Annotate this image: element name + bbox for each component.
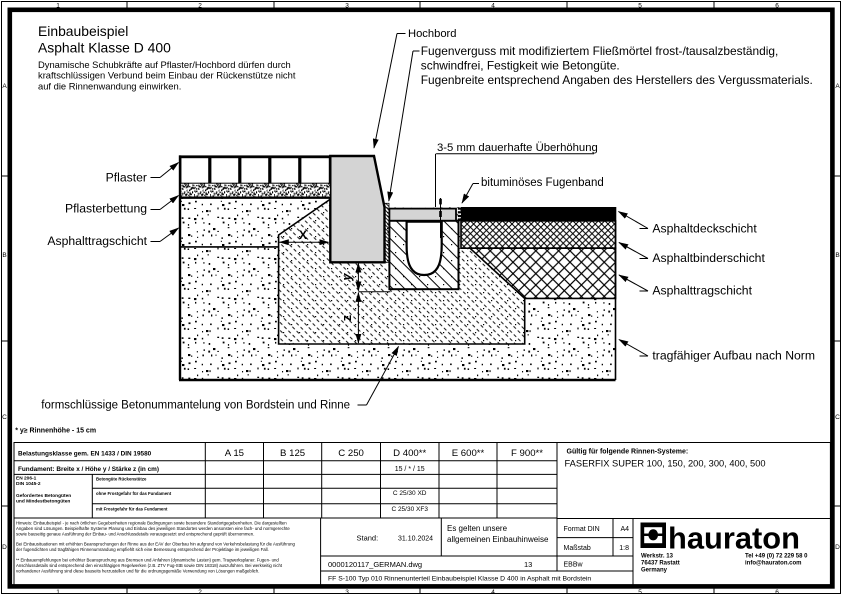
svg-text:X: X bbox=[299, 228, 307, 242]
svg-text:vorhandener Ausführung sind di: vorhandener Ausführung sind diese bausei… bbox=[16, 569, 259, 574]
svg-text:Werkstr. 13: Werkstr. 13 bbox=[641, 554, 674, 560]
svg-text:A: A bbox=[835, 83, 840, 90]
svg-text:5: 5 bbox=[638, 2, 642, 9]
svg-text:kraftschlüssigen Verbund beim: kraftschlüssigen Verbund beim Einbau der… bbox=[38, 70, 296, 81]
svg-text:C: C bbox=[2, 414, 7, 421]
svg-text:Belastungsklasse gem. EN 1433: Belastungsklasse gem. EN 1433 / DIN 1958… bbox=[18, 451, 152, 458]
svg-text:6: 6 bbox=[775, 589, 779, 595]
svg-text:* y≥ Rinnenhöhe - 15 cm: * y≥ Rinnenhöhe - 15 cm bbox=[15, 428, 96, 435]
svg-text:Gültig für folgende Rinnen-Sys: Gültig für folgende Rinnen-Systeme: bbox=[567, 449, 689, 456]
svg-text:Asphaltbinderschicht: Asphaltbinderschicht bbox=[652, 251, 765, 265]
svg-text:D: D bbox=[835, 544, 840, 551]
svg-text:Es gelten unsere: Es gelten unsere bbox=[447, 524, 508, 533]
svg-text:B: B bbox=[835, 252, 839, 259]
svg-text:5: 5 bbox=[638, 589, 642, 595]
svg-text:Asphaltdeckschicht: Asphaltdeckschicht bbox=[652, 222, 757, 236]
svg-text:EN 206-1: EN 206-1 bbox=[16, 476, 37, 482]
svg-text:1:8: 1:8 bbox=[619, 545, 629, 552]
svg-text:Tel +49 (0) 72 229 58 0: Tel +49 (0) 72 229 58 0 bbox=[745, 554, 808, 560]
svg-text:A4: A4 bbox=[620, 526, 629, 533]
svg-text:B 125: B 125 bbox=[280, 448, 305, 459]
svg-text:Fundament: Breite x / Höhe y /: Fundament: Breite x / Höhe y / Stärke z … bbox=[18, 466, 159, 473]
svg-text:hauraton: hauraton bbox=[668, 521, 800, 556]
svg-text:E 600**: E 600** bbox=[452, 448, 485, 459]
svg-text:1: 1 bbox=[56, 589, 60, 595]
svg-text:Hochbord: Hochbord bbox=[408, 28, 457, 40]
svg-text:Asphalttragschicht: Asphalttragschicht bbox=[652, 283, 752, 297]
svg-text:Fugenverguss mit modifiziertem: Fugenverguss mit modifiziertem Fließmört… bbox=[421, 44, 779, 58]
svg-text:formschlüssige Betonummantelun: formschlüssige Betonummantelung von Bord… bbox=[41, 400, 350, 412]
svg-text:D: D bbox=[2, 544, 7, 551]
svg-text:C: C bbox=[835, 414, 840, 421]
svg-text:A: A bbox=[2, 83, 7, 90]
svg-text:EBBw: EBBw bbox=[564, 562, 584, 569]
svg-text:15 / * / 15: 15 / * / 15 bbox=[395, 466, 425, 473]
svg-text:13: 13 bbox=[524, 560, 532, 569]
svg-text:Pflaster: Pflaster bbox=[106, 170, 147, 184]
svg-text:der fugendichten und tragfähig: der fugendichten und tragfähigen Rinnenu… bbox=[16, 547, 269, 552]
svg-text:Germany: Germany bbox=[641, 568, 668, 574]
svg-text:C 250: C 250 bbox=[338, 448, 364, 459]
svg-text:sowie bauseitig genaue Ausführ: sowie bauseitig genaue Ausführung der Ei… bbox=[16, 531, 254, 536]
svg-text:Anschlussdetails sind entsprec: Anschlussdetails sind entsprechend den e… bbox=[16, 563, 283, 568]
svg-text:0000120117_GERMAN.dwg: 0000120117_GERMAN.dwg bbox=[328, 560, 422, 569]
svg-text:Gefordertes Betongüten: Gefordertes Betongüten bbox=[16, 493, 71, 499]
svg-text:Format DIN: Format DIN bbox=[564, 526, 600, 533]
svg-text:Asphalt Klasse D 400: Asphalt Klasse D 400 bbox=[38, 40, 171, 56]
svg-text:2: 2 bbox=[198, 589, 202, 595]
svg-text:3: 3 bbox=[345, 589, 349, 595]
svg-text:Stand:: Stand: bbox=[357, 534, 379, 543]
svg-text:Fugenbreite entsprechend Angab: Fugenbreite entsprechend Angaben des Her… bbox=[421, 73, 813, 87]
svg-text:mit Frostgefahr für das Fundam: mit Frostgefahr für das Fundament bbox=[96, 507, 168, 512]
svg-text:allgemeinen Einbauhinweise: allgemeinen Einbauhinweise bbox=[447, 535, 549, 544]
svg-text:C 25/30 XF3: C 25/30 XF3 bbox=[391, 506, 428, 513]
svg-text:und Mindestbetongüten: und Mindestbetongüten bbox=[16, 499, 70, 505]
svg-text:4: 4 bbox=[491, 2, 495, 9]
svg-text:info@hauraton.com: info@hauraton.com bbox=[745, 561, 802, 567]
svg-text:FASERFIX SUPER 100, 150, 200,: FASERFIX SUPER 100, 150, 200, 300, 400, … bbox=[565, 459, 766, 469]
svg-text:Bei Einbausituationen mit erhö: Bei Einbausituationen mit erhöhten Beans… bbox=[16, 542, 296, 547]
svg-text:y: y bbox=[339, 273, 354, 282]
svg-text:F 900**: F 900** bbox=[511, 448, 543, 459]
svg-text:ohne Frostgefahr für das Funda: ohne Frostgefahr für das Fundament bbox=[96, 491, 172, 496]
svg-text:z: z bbox=[339, 314, 354, 321]
svg-text:schwindfrei, Festigkeit wie Be: schwindfrei, Festigkeit wie Betongüte. bbox=[421, 58, 620, 72]
svg-text:Betongüte Rückenstütze: Betongüte Rückenstütze bbox=[96, 476, 147, 481]
svg-text:tragfähiger Aufbau nach Norm: tragfähiger Aufbau nach Norm bbox=[652, 349, 815, 363]
svg-text:Asphalttragschicht: Asphalttragschicht bbox=[47, 234, 147, 248]
svg-text:Einbaubeispiel: Einbaubeispiel bbox=[38, 23, 128, 39]
svg-text:A 15: A 15 bbox=[225, 448, 244, 459]
svg-text:Hinweis: Einbaubeispiel - je n: Hinweis: Einbaubeispiel - je nach örtlic… bbox=[16, 521, 287, 526]
svg-text:D 400**: D 400** bbox=[393, 448, 426, 459]
svg-text:Pflasterbettung: Pflasterbettung bbox=[65, 202, 147, 216]
svg-text:1: 1 bbox=[56, 2, 60, 9]
svg-text:bituminöses Fugenband: bituminöses Fugenband bbox=[481, 177, 604, 189]
svg-text:2: 2 bbox=[198, 2, 202, 9]
svg-text:31.10.2024: 31.10.2024 bbox=[398, 536, 433, 543]
svg-text:Dynamische Schubkräfte auf Pfl: Dynamische Schubkräfte auf Pflaster/Hoch… bbox=[38, 59, 291, 70]
svg-text:Maßstab: Maßstab bbox=[564, 545, 591, 552]
svg-text:FF S-100 Typ 010 Rinnenunterte: FF S-100 Typ 010 Rinnenunterteil Einbaub… bbox=[328, 576, 591, 583]
svg-text:76437 Rastatt: 76437 Rastatt bbox=[641, 561, 680, 567]
svg-text:Angaben sind Lösungen. Beispie: Angaben sind Lösungen. Beispielhafte Sys… bbox=[16, 526, 290, 531]
svg-text:C 25/30 XD: C 25/30 XD bbox=[393, 490, 427, 497]
svg-text:** Einbauempfehlungen bei erhö: ** Einbauempfehlungen bei erhöhter Beans… bbox=[16, 558, 279, 563]
svg-text:3: 3 bbox=[345, 2, 349, 9]
svg-text:6: 6 bbox=[775, 2, 779, 9]
svg-text:3-5 mm dauerhafte Überhöhung: 3-5 mm dauerhafte Überhöhung bbox=[437, 142, 598, 154]
svg-text:B: B bbox=[2, 252, 6, 259]
svg-text:auf die Rinnenwandung einwirke: auf die Rinnenwandung einwirken. bbox=[38, 80, 181, 91]
svg-text:4: 4 bbox=[491, 589, 495, 595]
svg-text:DIN 1045-2: DIN 1045-2 bbox=[16, 481, 41, 487]
